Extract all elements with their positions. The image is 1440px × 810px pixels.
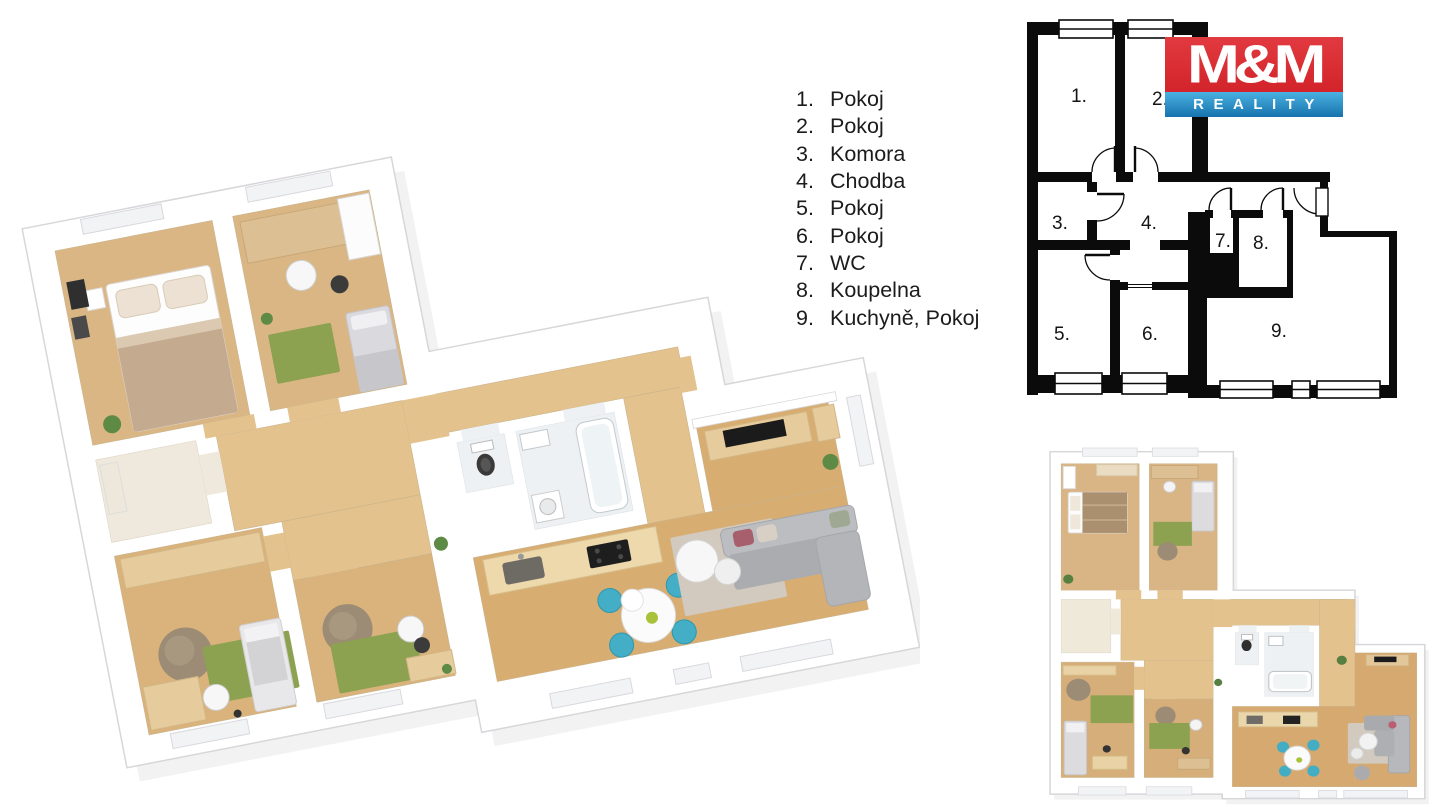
floor-plan-3d-small bbox=[1040, 445, 1432, 805]
shell-chair bbox=[1190, 719, 1202, 730]
rug bbox=[1149, 723, 1190, 749]
bowl bbox=[1296, 757, 1302, 763]
logo-tagline: REALITY bbox=[1184, 96, 1324, 113]
desk bbox=[1151, 466, 1198, 479]
coffee-table bbox=[1351, 748, 1363, 759]
tv bbox=[1374, 657, 1396, 663]
pillow bbox=[1070, 514, 1080, 529]
bed bbox=[1068, 492, 1127, 533]
real-estate-floorplan-sheet: 1. Pokoj 2. Pokoj 3. Komora 4. Chodba 5.… bbox=[0, 0, 1440, 810]
desk bbox=[1178, 758, 1210, 769]
room-label-7: 7. bbox=[1215, 231, 1231, 252]
rug bbox=[1091, 695, 1134, 723]
rug bbox=[1153, 522, 1191, 546]
bean-bag bbox=[1066, 679, 1090, 701]
single-bed bbox=[1192, 481, 1214, 531]
kitchen-counter bbox=[1238, 712, 1317, 727]
office-chair bbox=[1103, 745, 1111, 752]
sink bbox=[1247, 716, 1263, 724]
bathtub bbox=[1269, 671, 1312, 691]
logo-title: M&M bbox=[1187, 37, 1320, 91]
single-bed bbox=[1064, 721, 1086, 775]
washing-machine bbox=[531, 490, 564, 523]
bean-bag bbox=[1155, 706, 1175, 724]
dining-chair bbox=[1307, 740, 1319, 751]
legend-item: 1. Pokoj bbox=[796, 86, 979, 113]
wardrobe bbox=[1097, 465, 1138, 476]
plant bbox=[1337, 656, 1347, 665]
dining-chair bbox=[1307, 766, 1319, 777]
bean-bag bbox=[1157, 542, 1177, 560]
plant bbox=[1063, 574, 1073, 583]
sideboard bbox=[1063, 666, 1116, 675]
desk-chair bbox=[1163, 481, 1175, 492]
pillow bbox=[1070, 496, 1080, 511]
legend-item: 2. Pokoj bbox=[796, 113, 979, 140]
legend-label: Pokoj bbox=[830, 87, 884, 112]
room-label-8: 8. bbox=[1253, 233, 1269, 254]
logo-blue-bar: REALITY bbox=[1165, 92, 1343, 117]
logo-red-box: M&M bbox=[1165, 37, 1343, 92]
room-label-3: 3. bbox=[1052, 213, 1068, 234]
washbasin bbox=[1269, 636, 1283, 645]
room-label-6: 6. bbox=[1142, 324, 1158, 345]
office-chair bbox=[1182, 747, 1190, 754]
desk bbox=[1093, 756, 1127, 769]
floor-plan-3d-large bbox=[20, 140, 920, 810]
floor-hall bbox=[1121, 599, 1213, 660]
legend-label: Pokoj bbox=[830, 114, 884, 139]
room-label-9: 9. bbox=[1271, 321, 1287, 342]
stove bbox=[1283, 716, 1300, 724]
room-label-4: 4. bbox=[1141, 213, 1157, 234]
armchair bbox=[1354, 766, 1370, 781]
floor-room3 bbox=[1061, 599, 1111, 653]
dresser bbox=[1063, 466, 1075, 488]
logo-mm-reality: M&M REALITY bbox=[1165, 37, 1343, 117]
coffee-table bbox=[1359, 733, 1377, 750]
pillow bbox=[1388, 721, 1396, 728]
plant bbox=[1214, 679, 1222, 686]
room-label-1: 1. bbox=[1071, 86, 1087, 107]
room-label-5: 5. bbox=[1054, 324, 1070, 345]
legend-number: 1. bbox=[796, 87, 820, 112]
legend-number: 2. bbox=[796, 114, 820, 139]
tv-cabinet bbox=[1366, 655, 1409, 666]
